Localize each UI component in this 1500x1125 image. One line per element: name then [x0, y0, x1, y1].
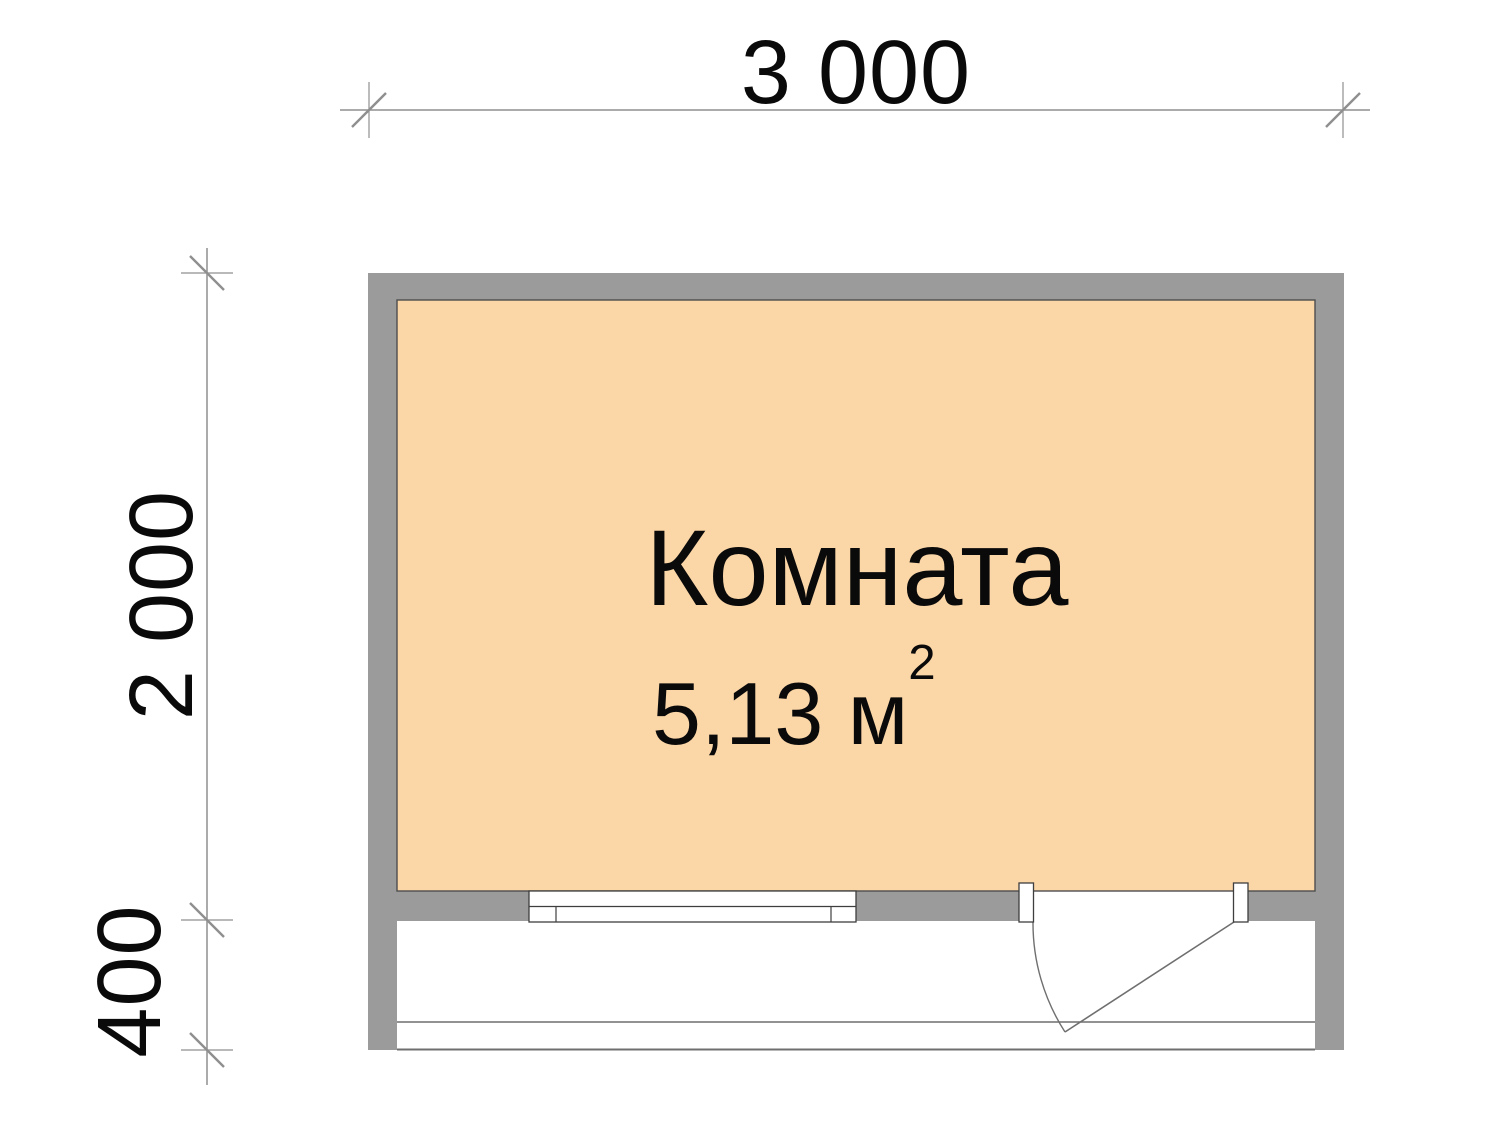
door-leaf [1065, 922, 1234, 1032]
door-jamb-right [1234, 883, 1249, 922]
dimension-height-label: 2 000 [117, 490, 207, 720]
door [1019, 883, 1248, 1032]
bottom-wall-right-segment [1248, 891, 1315, 921]
right-wall [1315, 273, 1344, 1050]
bottom-wall-middle-segment [856, 891, 1019, 921]
left-wall [368, 273, 397, 1050]
room-name-label: Комната [646, 514, 1069, 622]
floor-plan: 3 000 2 000 400 Комната 5,13 м2 [0, 0, 1500, 1125]
room-area-label: 5,13 м2 [652, 670, 936, 758]
door-swing-arc [1033, 922, 1065, 1032]
room-area-value: 5,13 м [652, 664, 908, 763]
dimension-porch-label: 400 [85, 904, 175, 1057]
porch [397, 1022, 1315, 1050]
bottom-wall-left-segment [397, 891, 529, 921]
window [529, 891, 856, 922]
top-wall [368, 273, 1344, 300]
room-area-exponent: 2 [908, 635, 935, 690]
door-jamb-left [1019, 883, 1034, 922]
dimension-width-label: 3 000 [741, 28, 971, 118]
